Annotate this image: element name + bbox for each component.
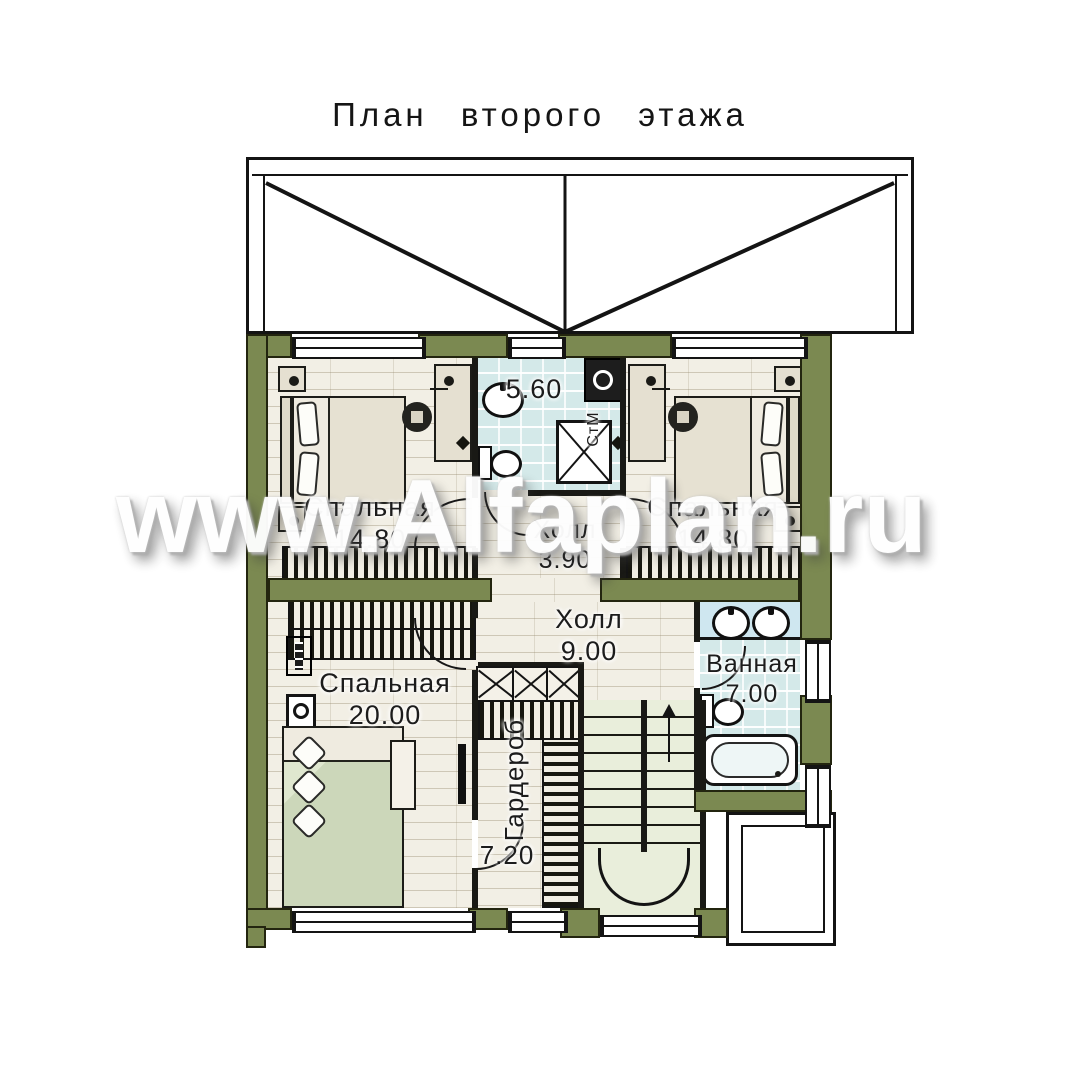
window	[292, 337, 426, 359]
exterior-wall	[418, 334, 508, 358]
balcony-bottom-right	[726, 812, 836, 946]
room-name: Холл	[509, 604, 669, 636]
room-area: 9.00	[509, 636, 669, 668]
room-area: 5.60	[484, 374, 584, 406]
interior-bearing-wall	[268, 578, 492, 602]
watermark: www.Alfaplan.ru	[116, 458, 927, 577]
exterior-wall	[800, 695, 832, 765]
room-label-bathroom-right: Ванная 7.00	[702, 650, 802, 709]
partition-wall	[472, 868, 478, 908]
partition-wall	[694, 602, 700, 642]
desk-lamp-icon	[646, 376, 656, 386]
wardrobe-hangers-side	[542, 738, 582, 908]
balcony-roof-lines	[246, 157, 914, 334]
window	[805, 765, 831, 828]
stair-arrow-head	[662, 704, 676, 717]
washbasin-icon	[712, 606, 750, 640]
bathtub-icon	[702, 734, 798, 786]
room-name: Спальная	[305, 668, 465, 700]
window	[600, 915, 702, 937]
pillow	[296, 401, 320, 447]
desk-lamp-icon	[444, 376, 454, 386]
floor-plan: План второго этажа	[0, 0, 1080, 1080]
exterior-wall	[558, 334, 672, 358]
window	[508, 911, 568, 933]
room-label-wardrobe-name: Гардероб	[499, 705, 525, 855]
partition-wall	[472, 670, 478, 820]
wardrobe-hangers-top	[478, 700, 582, 740]
chair	[402, 402, 432, 432]
chair	[668, 402, 698, 432]
window	[805, 640, 831, 703]
room-area: 20.00	[305, 700, 465, 732]
tv-icon	[458, 744, 466, 804]
nightstand	[278, 366, 306, 392]
nightstand	[774, 366, 802, 392]
desk-lamp-arm	[652, 388, 670, 390]
stair-stringer	[641, 700, 647, 852]
exterior-wall	[246, 926, 266, 948]
shelf-box	[512, 666, 550, 702]
room-label-bedroom-large: Спальная 20.00	[305, 668, 465, 732]
room-name: Ванная	[702, 650, 802, 680]
room-label-hall-main: Холл 9.00	[509, 604, 669, 668]
exterior-wall	[246, 334, 268, 930]
shelf-box	[476, 666, 516, 702]
balcony-top	[246, 157, 914, 334]
stair-arrow-line	[668, 714, 670, 762]
room-area: 7.00	[702, 680, 802, 710]
washbasin-icon	[752, 606, 790, 640]
page-title: План второго этажа	[0, 96, 1080, 134]
room-label-wardrobe-area: 7.20	[472, 840, 542, 871]
pillow	[760, 401, 784, 447]
window	[672, 337, 808, 359]
interior-bearing-wall	[600, 578, 800, 602]
washing-machine-icon	[584, 358, 622, 402]
room-label-bathroom-top: 5.60	[484, 374, 584, 406]
desk-lamp-arm	[430, 388, 448, 390]
window	[292, 911, 476, 933]
window	[508, 337, 566, 359]
partition-wall	[578, 662, 584, 916]
cabinet	[390, 740, 416, 810]
partition-wall	[472, 602, 478, 618]
shelf-box	[546, 666, 582, 702]
hall-passage	[492, 578, 600, 602]
washing-machine-label: СтМ	[585, 397, 603, 461]
